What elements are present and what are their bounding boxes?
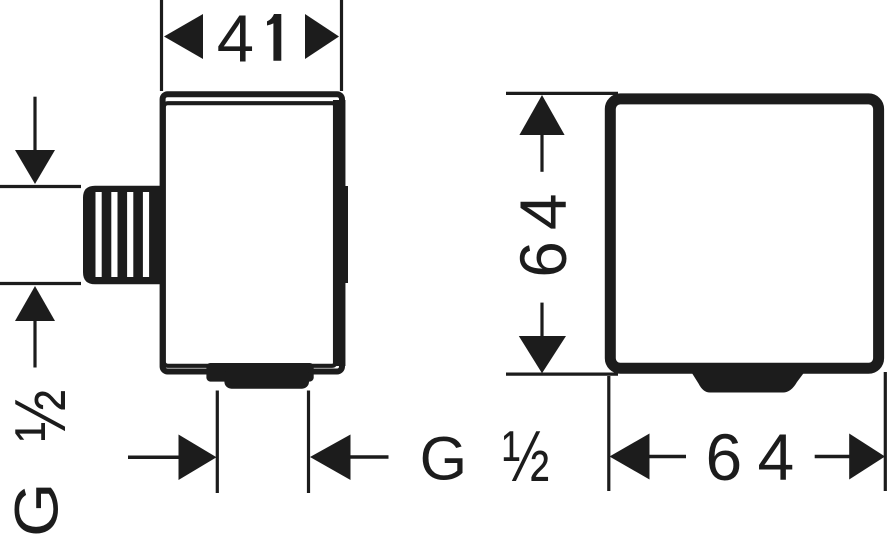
svg-text:G: G xyxy=(420,424,467,492)
svg-text:½: ½ xyxy=(502,415,549,496)
svg-text:6: 6 xyxy=(706,420,743,494)
svg-text:4: 4 xyxy=(758,420,795,494)
svg-text:½: ½ xyxy=(1,389,81,441)
svg-text:4: 4 xyxy=(217,1,254,76)
svg-text:64: 64 xyxy=(506,182,580,277)
svg-text:G: G xyxy=(2,482,71,535)
